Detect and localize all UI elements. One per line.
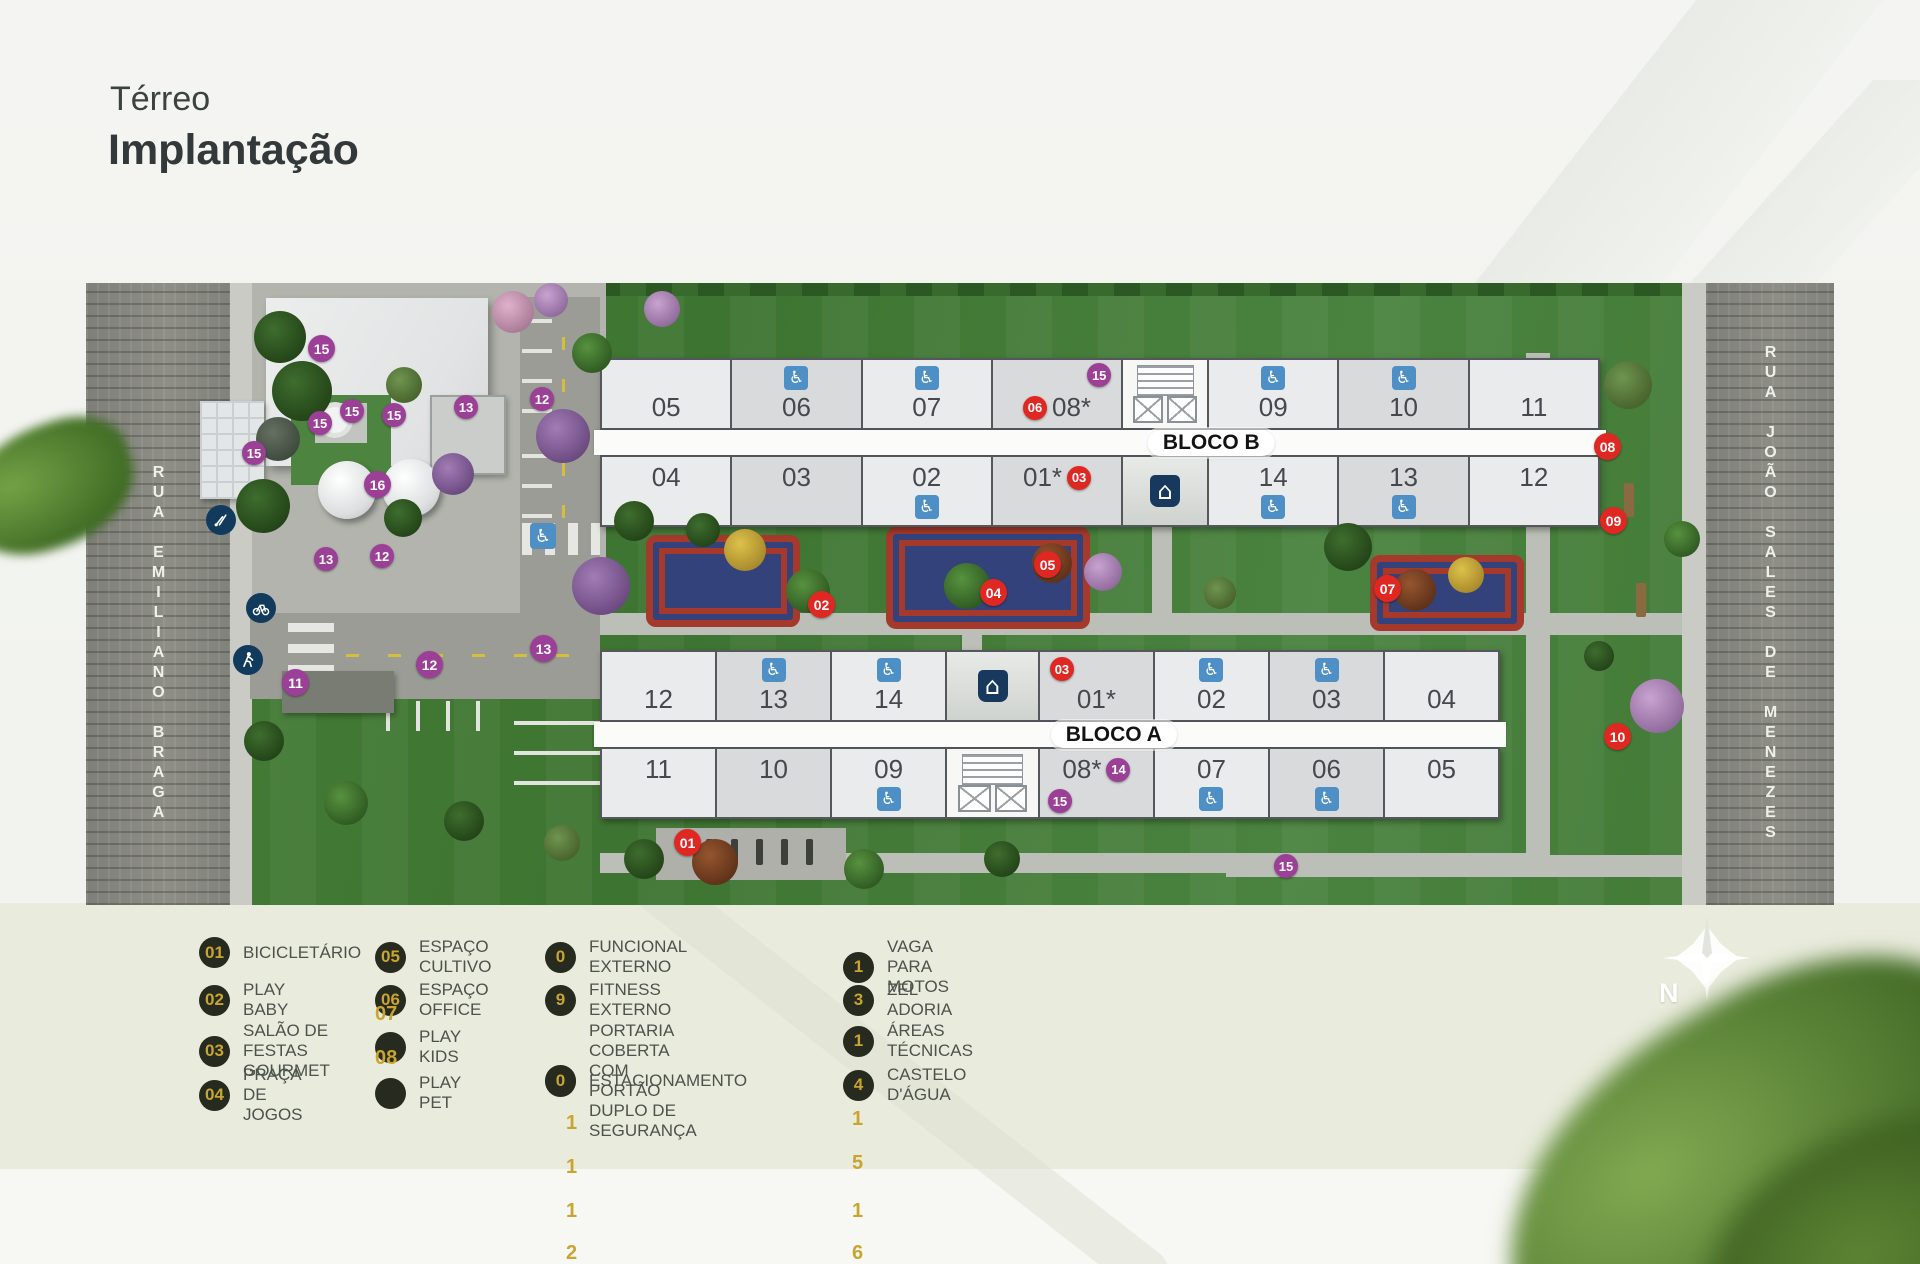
tree [614,501,654,541]
facility-badge: 08 [1594,433,1621,460]
unit-number: 13 [717,684,830,715]
wheelchair-icon: ♿ [1315,658,1339,682]
stairs [962,754,1024,785]
legend-item: PLAY PET [375,1073,461,1113]
street-left: RUA EMILIANO BRAGA [86,283,230,905]
legend-label: ESPAÇO CULTIVO [419,937,491,977]
tree [572,333,612,373]
unit-number-text: 01* [1023,462,1062,493]
unit: ♿ 09 [1209,360,1337,428]
unit-number: 01* [1040,684,1153,715]
keyplan-badge: 16 [364,471,391,498]
legend-item: 0 ESTACIONAMENTO [545,1065,747,1096]
street-right-name: RUA JOÃO SALES DE MENEZES [1761,344,1779,844]
unit: 12 [602,652,715,720]
tree [984,841,1020,877]
unit: ♿ 07 [863,360,991,428]
bike-icon [246,593,276,623]
unit: 11 [602,749,715,817]
bike-rack [806,839,813,865]
parking-stalls [514,701,600,785]
unit-number: 12 [602,684,715,715]
legend-badge: 02 [199,985,230,1016]
keyplan-badge: 11 [282,669,309,696]
parking-stalls [386,701,506,731]
unit-number: 03 [732,462,860,493]
tree [624,839,664,879]
unit: ♿ 03 [1270,652,1383,720]
unit: ♿ 14 [832,652,945,720]
bike-rack [781,839,788,865]
keyplan-badge: 13 [314,547,338,571]
legend-label: ESPAÇO OFFICE [419,980,489,1020]
legend-badge: 9 [545,985,576,1016]
bloco-b-corridor: BLOCO B [594,430,1606,455]
keyplan-badge: 15 [340,399,364,423]
keyplan-badge: 13 [454,395,478,419]
street-left-name: RUA EMILIANO BRAGA [149,464,167,824]
keyplan-badge: 15 [1048,789,1072,813]
block-label: BLOCO A [1051,722,1177,748]
legend-label: ZEL ADORIA [887,980,952,1020]
unit-number: 14 [832,684,945,715]
lane-marking [346,654,596,657]
wheelchair-icon: ♿ [1199,658,1223,682]
legend-badge: 0 [545,1065,576,1096]
wheelchair-icon: ♿ [784,366,808,390]
unit: ♿ 07 [1155,749,1268,817]
unit-number: 02 [1155,684,1268,715]
unit-number: 10 [1339,392,1467,423]
compass-rose: N [1645,912,1785,1022]
legend-badge: 03 [199,1036,230,1067]
keyplan-badge: 12 [530,387,554,411]
legend-badge: 4 [843,1070,874,1101]
unit-number: 11 [1470,392,1598,423]
unit-number: 05 [602,392,730,423]
unit-number: 06 08* [993,392,1121,423]
floor-kicker: Térreo [110,80,210,119]
site-plan-image: RUA EMILIANO BRAGA RUA JOÃO SALES DE MEN… [86,283,1834,905]
legend-overflow-number: 5 [852,1152,863,1175]
tree [544,825,580,861]
legend-label: CASTELO D'ÁGUA [887,1065,966,1105]
legend-item: 9 FITNESS EXTERNO [545,980,671,1020]
unit-number: 04 [602,462,730,493]
sidewalk-left [230,283,252,905]
compass-north-label: N [1659,978,1679,1009]
legend-overflow-number: 1 [852,1108,863,1131]
tree [386,367,422,403]
unit: 12 [1470,457,1598,525]
legend-overflow-number: 08 [375,1047,397,1070]
tree [1604,361,1652,409]
legend-overflow-number: 6 [852,1242,863,1264]
keyplan-badge: 15 [308,411,332,435]
facility-badge: 02 [808,591,835,618]
tree [572,557,630,615]
facility-badge: 07 [1374,575,1401,602]
legend-badge: 01 [199,937,230,968]
bloco-a-bottom-row: 11 10 ♿ 09 15 08* 14 ♿ 07 [600,747,1500,819]
legend-badge [375,1078,406,1109]
tree [1664,521,1700,557]
unit: 04 [1385,652,1498,720]
unit-number: 07 [1155,754,1268,785]
unit: 03 [732,457,860,525]
tree [492,291,534,333]
bench [1636,583,1646,617]
legend-item: 0 FUNCIONAL EXTERNO [545,937,687,977]
unit-number: 08* 14 [1040,754,1153,785]
legend-overflow-number: 07 [375,1003,397,1026]
facility-badge: 01 [674,829,701,856]
legend-badge: 3 [843,985,874,1016]
legend-label: BICICLETÁRIO [243,943,361,963]
legend-badge: 0 [545,942,576,973]
wheelchair-icon: ♿ [1261,495,1285,519]
unit-number: 10 [717,754,830,785]
unit: ♿ 13 [1339,457,1467,525]
wheelchair-icon: ♿ [762,658,786,682]
wheelchair-icon: ♿ [915,366,939,390]
tree [324,781,368,825]
legend-label: FUNCIONAL EXTERNO [589,937,687,977]
playground-mat [646,535,800,627]
keyplan-badge: 12 [416,651,443,678]
unit: ♿ 06 [732,360,860,428]
tools-icon [206,505,236,535]
unit: ♿ 09 [832,749,945,817]
facility-badge: 10 [1604,723,1631,750]
background-footer-band [0,1169,1920,1264]
facility-badge: 06 [1023,396,1047,420]
wheelchair-icon: ♿ [1261,366,1285,390]
bike-rack [756,839,763,865]
accessible-parking-icon: ♿ [530,523,556,549]
entry-passage: ⌂ [947,652,1038,720]
keyplan-badge: 12 [370,544,394,568]
unit-number: 13 [1339,462,1467,493]
tree [844,849,884,889]
garden-path [1152,520,1172,615]
tree [244,721,284,761]
facility-badge: 03 [1050,657,1074,681]
unit-number: 14 [1209,462,1337,493]
tree [644,291,680,327]
facility-badge: 04 [980,579,1007,606]
unit-number: 03 [1270,684,1383,715]
unit-number-text: 08* [1052,392,1091,423]
legend-badge: 04 [199,1080,230,1111]
unit: 05 [602,360,730,428]
tree [1084,553,1122,591]
tree [1324,523,1372,571]
tree [686,513,720,547]
bloco-b-top-row: 05 ♿ 06 ♿ 07 15 06 08* ♿ 09 [600,358,1600,430]
keyplan-badge: 15 [242,441,266,465]
tree [1448,557,1484,593]
unit-number: 12 [1470,462,1598,493]
legend-badge: 05 [375,942,406,973]
unit: ♿ 14 [1209,457,1337,525]
tree [444,801,484,841]
unit: 15 06 08* [993,360,1121,428]
legend-badge: 1 [843,1026,874,1057]
tree [536,409,590,463]
page-title: Implantação [108,126,359,175]
legend-item: 4 CASTELO D'ÁGUA [843,1065,966,1105]
stair-core [1123,360,1207,428]
unit-number: 07 [863,392,991,423]
facility-badge: 03 [1067,466,1091,490]
unit-number: 06 [732,392,860,423]
legend-item: 1 ÁREAS TÉCNICAS [843,1021,973,1061]
legend-overflow-number: 1 [852,1200,863,1223]
legend-overflow-number: 1 [566,1200,577,1223]
unit-number: 09 [832,754,945,785]
bloco-a-corridor: BLOCO A [594,722,1506,747]
elevator-shafts [1133,396,1197,423]
unit-number: 05 [1385,754,1498,785]
tree [236,479,290,533]
legend-label: PLAY KIDS [419,1027,461,1067]
legend-label: ESTACIONAMENTO [589,1071,747,1091]
block-label: BLOCO B [1148,430,1275,456]
wheelchair-icon: ♿ [1315,787,1339,811]
unit: ♿ 13 [717,652,830,720]
bloco-b-bottom-row: 04 03 ♿ 02 01* 03 ⌂ ♿ 14 ♿ 13 [600,455,1600,527]
building-bloco-b: 05 ♿ 06 ♿ 07 15 06 08* ♿ 09 [600,358,1600,527]
unit: 03 01* [1040,652,1153,720]
legend-item: 01 BICICLETÁRIO [199,937,361,968]
legend-item: 3 ZEL ADORIA [843,980,952,1020]
legend-overflow-number: 1 [566,1156,577,1179]
wheelchair-icon: ♿ [1392,495,1416,519]
unit: 01* 03 [993,457,1121,525]
wheelchair-icon: ♿ [877,787,901,811]
unit-number: 01* 03 [993,462,1121,493]
unit: 05 [1385,749,1498,817]
stairs [1137,365,1194,396]
facility-badge: 05 [1034,551,1061,578]
unit-number: 06 [1270,754,1383,785]
legend-label: FITNESS EXTERNO [589,980,671,1020]
page: Térreo Implantação RUA EMILIANO BRAGA RU… [0,0,1920,1264]
legend-label: PRAÇA DE JOGOS [243,1065,303,1125]
keyplan-badge: 15 [1274,854,1298,878]
building-bloco-a: 12 ♿ 13 ♿ 14 ⌂ 03 01* ♿ 02 ♿ 03 [600,650,1500,819]
keyplan-badge: 15 [382,403,406,427]
elevator-shafts [958,785,1027,812]
legend-item: 02 PLAY BABY [199,980,288,1020]
unit: 11 [1470,360,1598,428]
unit: ♿ 02 [1155,652,1268,720]
unit: ♿ 06 [1270,749,1383,817]
unit-number: 11 [602,754,715,785]
facility-badge: 09 [1600,507,1627,534]
wheelchair-icon: ♿ [1392,366,1416,390]
tree [254,311,306,363]
legend-badge: 1 [843,952,874,983]
wheelchair-icon: ♿ [1199,787,1223,811]
tree [724,529,766,571]
legend-item: 05 ESPAÇO CULTIVO [375,937,491,977]
street-right: RUA JOÃO SALES DE MENEZES [1706,283,1834,905]
legend-label: PLAY BABY [243,980,288,1020]
unit-number-text: 08* [1062,754,1101,785]
bench [1624,483,1634,517]
unit: 15 08* 14 [1040,749,1153,817]
wheelchair-icon: ♿ [877,658,901,682]
tree [384,499,422,537]
keyplan-badge: 15 [1087,363,1111,387]
unit: 10 [717,749,830,817]
unit: ♿ 02 [863,457,991,525]
unit-number: 04 [1385,684,1498,715]
entry-passage: ⌂ [1123,457,1207,525]
tree [432,453,474,495]
legend-overflow-number: 1 [566,1112,577,1135]
unit-number: 02 [863,462,991,493]
tree [1204,577,1236,609]
legend-label: ÁREAS TÉCNICAS [887,1021,973,1061]
unit-number: 09 [1209,392,1337,423]
legend-item: 04 PRAÇA DE JOGOS [199,1065,303,1125]
keyplan-badge: 15 [308,335,335,362]
entry-icon: ⌂ [1150,475,1180,507]
legend-overflow-number: 2 [566,1242,577,1264]
pedestrian-icon [233,645,263,675]
wheelchair-icon: ♿ [915,495,939,519]
sidewalk-right [1682,283,1706,905]
stair-core [947,749,1038,817]
entry-icon: ⌂ [978,670,1008,702]
legend-label: PLAY PET [419,1073,461,1113]
unit: ♿ 10 [1339,360,1467,428]
tree [1630,679,1684,733]
bloco-a-top-row: 12 ♿ 13 ♿ 14 ⌂ 03 01* ♿ 02 ♿ 03 [600,650,1500,722]
tree [1584,641,1614,671]
keyplan-badge: 13 [530,635,557,662]
keyplan-badge: 14 [1106,758,1130,782]
tree [534,283,568,317]
